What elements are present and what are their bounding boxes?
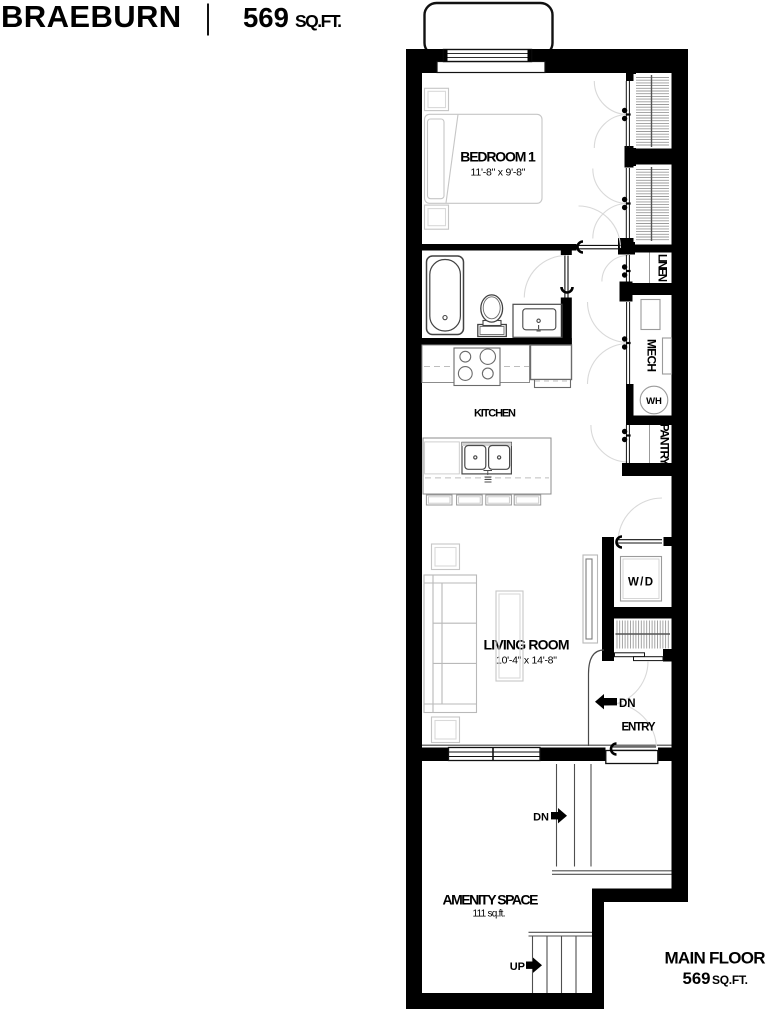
svg-text:11'-8" x 9'-8": 11'-8" x 9'-8" [471, 167, 526, 179]
svg-text:UP: UP [510, 961, 525, 973]
svg-text:BEDROOM 1: BEDROOM 1 [460, 149, 536, 165]
svg-text:MECH: MECH [645, 339, 659, 372]
svg-text:SQ.FT.: SQ.FT. [712, 973, 748, 987]
svg-text:10'-4" x 14'-8": 10'-4" x 14'-8" [496, 655, 557, 667]
svg-text:111 sq.ft.: 111 sq.ft. [473, 909, 506, 920]
svg-text:569: 569 [683, 969, 711, 988]
svg-text:ENTRY: ENTRY [622, 722, 656, 734]
svg-text:DN: DN [619, 698, 636, 710]
svg-text:AMENITY SPACE: AMENITY SPACE [443, 892, 539, 908]
svg-text:WH: WH [646, 396, 662, 407]
svg-text:LINEN: LINEN [656, 254, 668, 282]
svg-text:DN: DN [533, 812, 549, 824]
svg-text:569: 569 [243, 2, 289, 33]
svg-text:W/D: W/D [628, 577, 653, 589]
svg-text:SQ.FT.: SQ.FT. [295, 11, 342, 31]
svg-text:BRAEBURN: BRAEBURN [1, 0, 182, 34]
svg-text:MAIN FLOOR: MAIN FLOOR [665, 949, 766, 968]
svg-text:KITCHEN: KITCHEN [474, 408, 516, 420]
svg-text:PANTRY: PANTRY [658, 424, 672, 466]
